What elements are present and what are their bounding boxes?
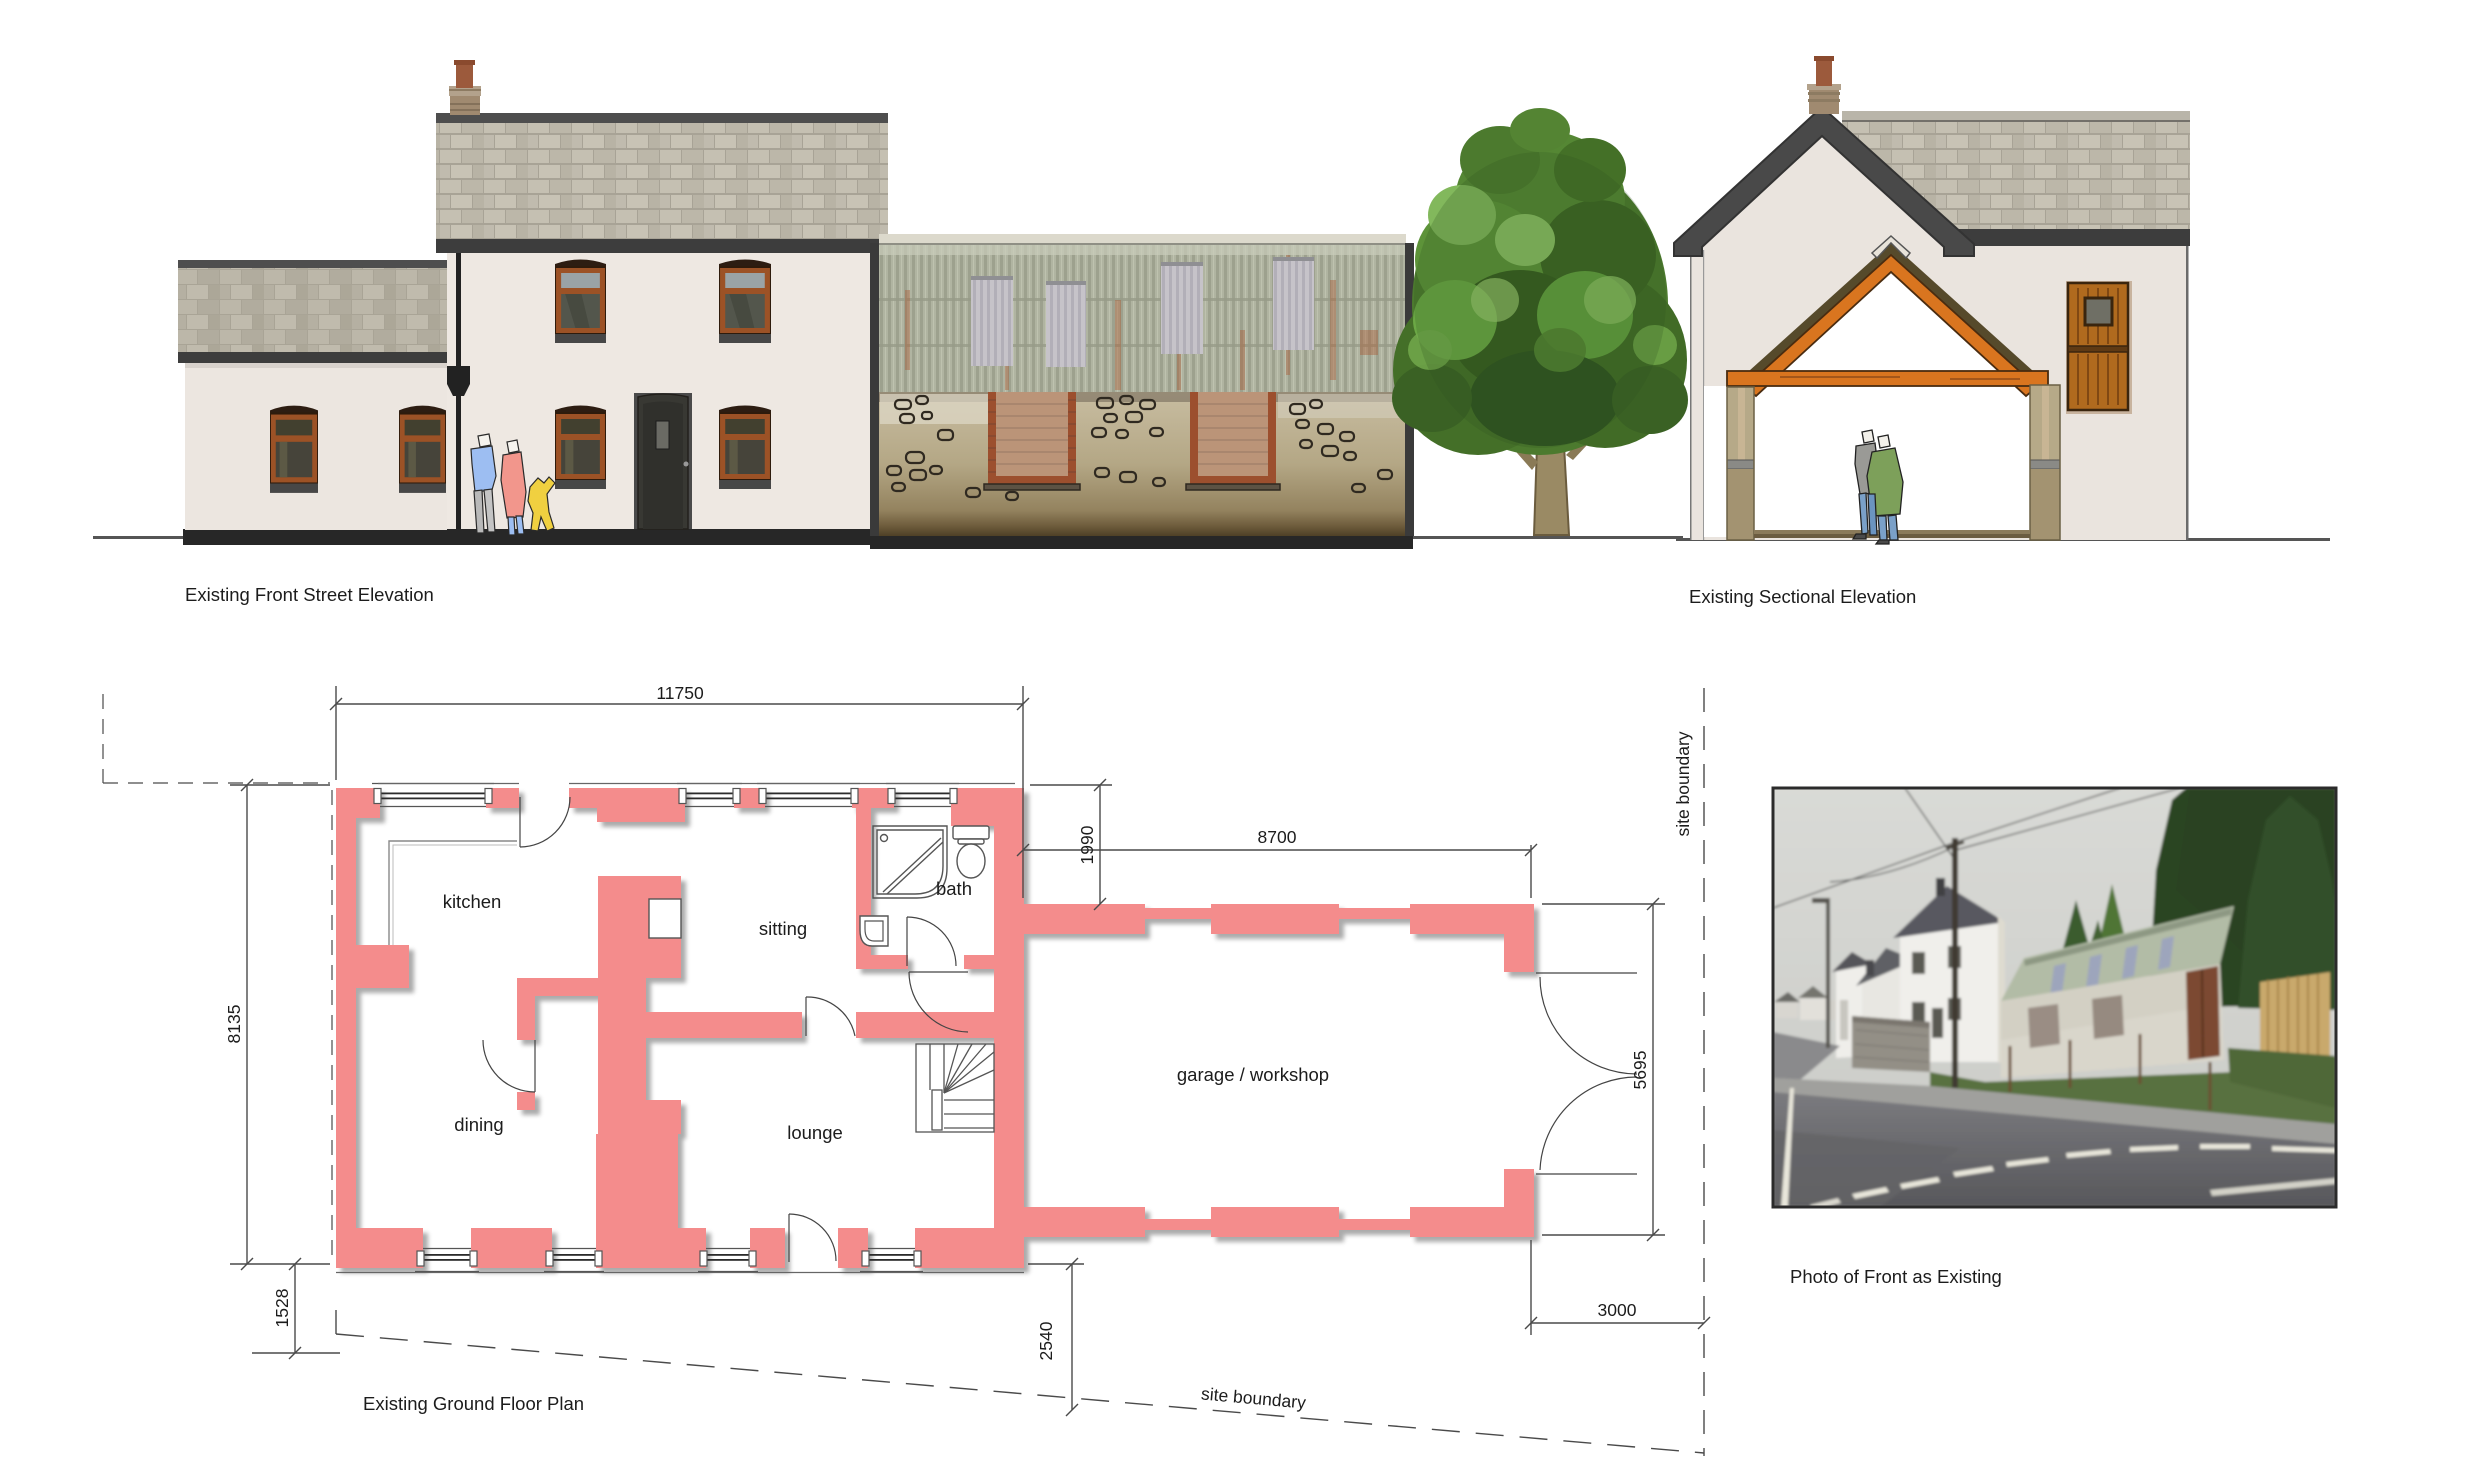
svg-text:1990: 1990 — [1077, 825, 1097, 864]
svg-text:sitting: sitting — [759, 918, 807, 939]
svg-text:bath: bath — [936, 878, 972, 899]
svg-text:8700: 8700 — [1258, 827, 1297, 847]
svg-text:1528: 1528 — [272, 1289, 292, 1328]
svg-text:2540: 2540 — [1036, 1321, 1056, 1360]
svg-text:Existing Sectional Elevation: Existing Sectional Elevation — [1689, 586, 1916, 607]
svg-text:garage / workshop: garage / workshop — [1177, 1064, 1329, 1085]
svg-text:dining: dining — [454, 1114, 503, 1135]
svg-text:Photo of Front as Existing: Photo of Front as Existing — [1790, 1266, 2002, 1287]
svg-text:site boundary: site boundary — [1200, 1383, 1307, 1412]
svg-text:8135: 8135 — [224, 1005, 244, 1044]
svg-text:11750: 11750 — [656, 683, 704, 703]
svg-text:kitchen: kitchen — [443, 891, 502, 912]
svg-text:site boundary: site boundary — [1673, 731, 1693, 836]
svg-text:Existing Front Street Elevatio: Existing Front Street Elevation — [185, 584, 434, 605]
svg-text:5695: 5695 — [1630, 1051, 1650, 1090]
svg-text:lounge: lounge — [787, 1122, 843, 1143]
svg-text:3000: 3000 — [1598, 1300, 1637, 1320]
svg-text:Existing Ground Floor Plan: Existing Ground Floor Plan — [363, 1393, 584, 1414]
